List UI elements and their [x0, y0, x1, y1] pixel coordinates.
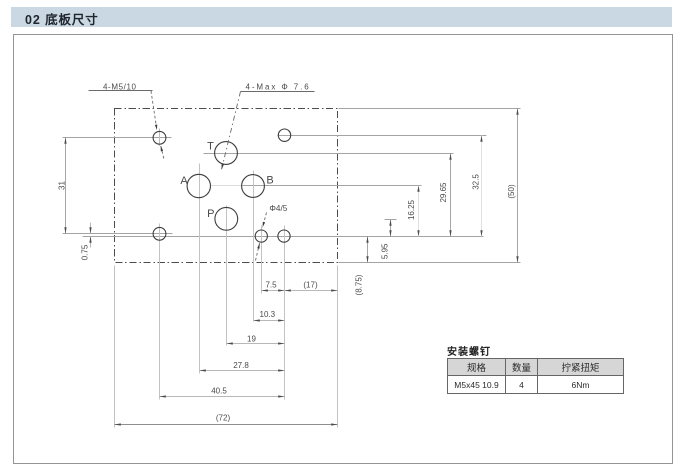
svg-text:Φ4/5: Φ4/5 — [269, 204, 287, 213]
svg-text:40.5: 40.5 — [211, 387, 227, 396]
svg-text:A: A — [180, 175, 188, 187]
svg-text:(17): (17) — [303, 281, 318, 290]
svg-text:7.5: 7.5 — [265, 281, 277, 290]
svg-text:4-M5/10: 4-M5/10 — [103, 83, 137, 92]
svg-text:29.65: 29.65 — [439, 182, 448, 203]
svg-text:27.8: 27.8 — [233, 361, 249, 370]
svg-text:T: T — [207, 141, 214, 153]
svg-text:32.5: 32.5 — [472, 174, 481, 190]
svg-text:31: 31 — [58, 181, 67, 190]
svg-text:10.3: 10.3 — [260, 310, 276, 319]
svg-text:19: 19 — [247, 335, 256, 344]
svg-text:(8.75): (8.75) — [355, 274, 364, 295]
svg-text:0.75: 0.75 — [81, 244, 90, 260]
svg-text:B: B — [266, 174, 273, 186]
svg-text:5.95: 5.95 — [381, 243, 390, 259]
svg-text:(50): (50) — [507, 184, 516, 199]
svg-text:P: P — [207, 208, 214, 220]
svg-text:4-Max Φ 7.6: 4-Max Φ 7.6 — [246, 83, 311, 92]
svg-text:(72): (72) — [216, 413, 231, 422]
svg-text:16.25: 16.25 — [407, 199, 416, 220]
